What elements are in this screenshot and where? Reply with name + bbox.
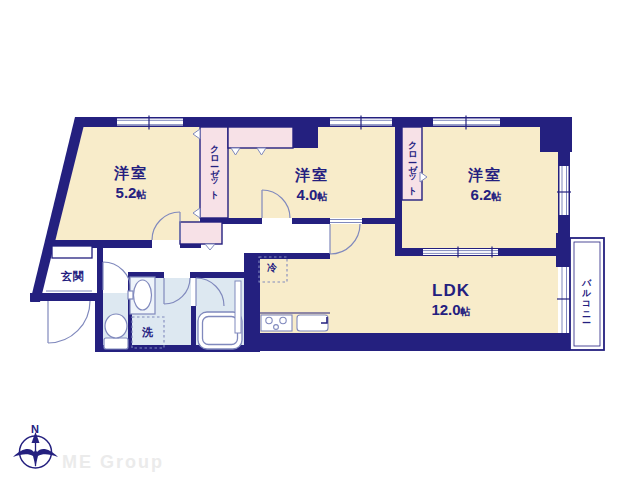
bath-counter — [235, 281, 241, 333]
floor-plan-image: 洋室 5.2帖 洋室 4.0帖 洋室 6.2帖 LDK 12.0帖 クローゼット… — [0, 0, 640, 480]
closet-top-floor — [228, 127, 293, 148]
wash-basin — [128, 277, 155, 314]
room-4-0-size-unit: 帖 — [317, 191, 327, 202]
closet-2-label: クローゼット — [408, 134, 417, 191]
kitchen-sink — [297, 315, 328, 331]
ldk-size-unit: 帖 — [461, 306, 471, 317]
hall-closet-floor — [180, 222, 222, 244]
room-6-2-size: 6.2帖 — [471, 187, 502, 202]
room-4-0-size: 4.0帖 — [297, 187, 328, 202]
room-5-2-name: 洋室 — [114, 165, 148, 180]
room-5-2-size-unit: 帖 — [136, 189, 146, 200]
room-6-2-size-unit: 帖 — [491, 191, 501, 202]
shoe-cabinet — [52, 246, 92, 258]
floor-plan-drawing — [0, 0, 640, 480]
room-5-2-size-value: 5.2 — [116, 184, 137, 201]
room-5-2-size: 5.2帖 — [116, 185, 147, 200]
room-6-2-name: 洋室 — [468, 167, 502, 182]
ldk-size: 12.0帖 — [431, 302, 470, 317]
room-4-0-size-value: 4.0 — [297, 186, 318, 203]
compass-bird-icon — [13, 449, 58, 467]
refrigerator-label: 冷 — [267, 263, 277, 273]
closet-1-label: クローゼット — [210, 138, 219, 195]
ldk-size-value: 12.0 — [431, 301, 460, 318]
balcony-label: バルコニー — [582, 272, 591, 318]
ldk-name: LDK — [432, 282, 470, 299]
compass-north-label: N — [31, 423, 39, 435]
toilet-fixture — [104, 314, 128, 349]
room-6-2-size-value: 6.2 — [471, 186, 492, 203]
compass — [13, 432, 58, 468]
room-4-0-name: 洋室 — [295, 167, 329, 182]
stove — [261, 315, 292, 331]
entrance-label: 玄関 — [61, 271, 85, 282]
laundry-label: 洗 — [142, 327, 154, 338]
brand-logo-text: ME Group — [62, 452, 164, 473]
